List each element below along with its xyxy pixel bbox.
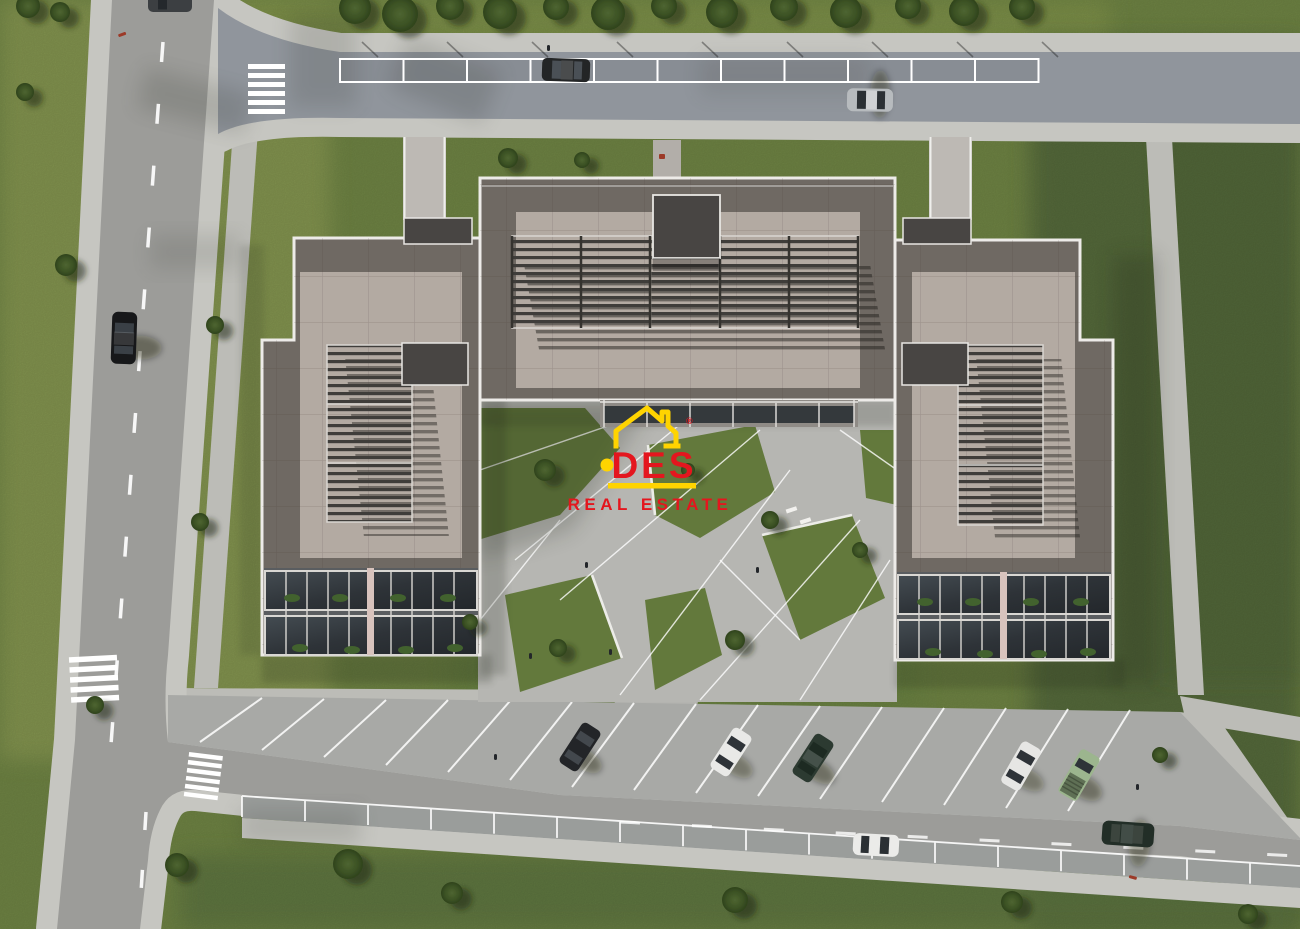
top-road-parking-bays [340,59,1039,82]
logo-underline [608,483,696,489]
right-roof-box-west [902,343,968,385]
left-balcony-divider [367,568,374,655]
logo-registered-mark: ® [686,416,693,426]
logo-brand-text: DES [611,445,696,486]
left-wing-walkway [403,137,446,220]
aerial-site-render: ® DES REAL ESTATE [0,0,1300,929]
logo-tagline-text: REAL ESTATE [568,495,733,514]
center-roof-box-shadow [653,258,720,271]
building-left-block [262,218,480,655]
scene-canvas: ® DES REAL ESTATE [0,0,1300,929]
building-center-block [480,178,895,427]
car-parked-suv-top-road [542,58,591,83]
right-wing-walkway [929,137,972,220]
right-pergola [958,345,1080,539]
right-balconies [897,572,1111,659]
left-balconies [264,568,478,655]
car-top-edge [148,0,192,12]
center-entrance-path [653,140,681,180]
left-roof-box-east [402,343,468,385]
right-balcony-divider [1000,572,1007,659]
car-white-bottom-road [852,833,899,857]
building-right-block [895,218,1113,660]
right-roof-box-north [903,218,971,244]
left-roof-box-north [404,218,472,244]
center-roof-box [653,195,720,258]
